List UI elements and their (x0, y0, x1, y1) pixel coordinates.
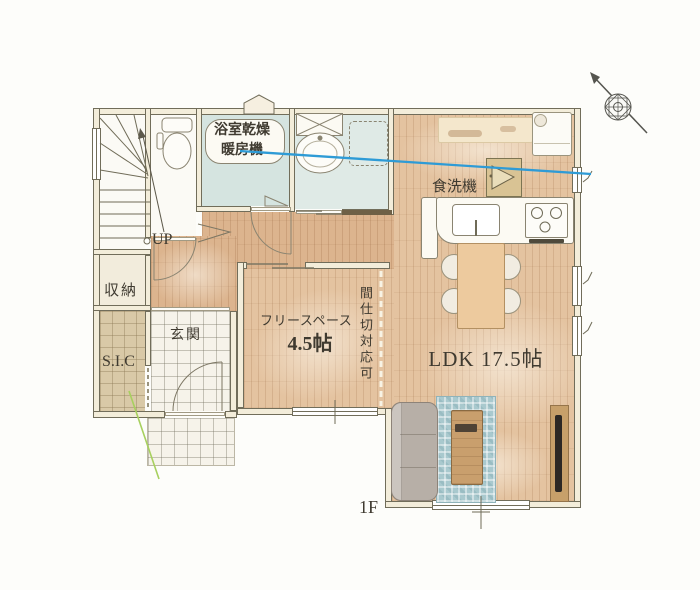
annotation-line-blue (240, 151, 591, 174)
annotation-overlay (0, 0, 700, 590)
floorplan-canvas: 浴室乾燥暖房機 食洗機 UP 収納 S.I.C 玄関 フリースペース 4.5帖 … (0, 0, 700, 590)
annotation-line-green (129, 391, 159, 479)
